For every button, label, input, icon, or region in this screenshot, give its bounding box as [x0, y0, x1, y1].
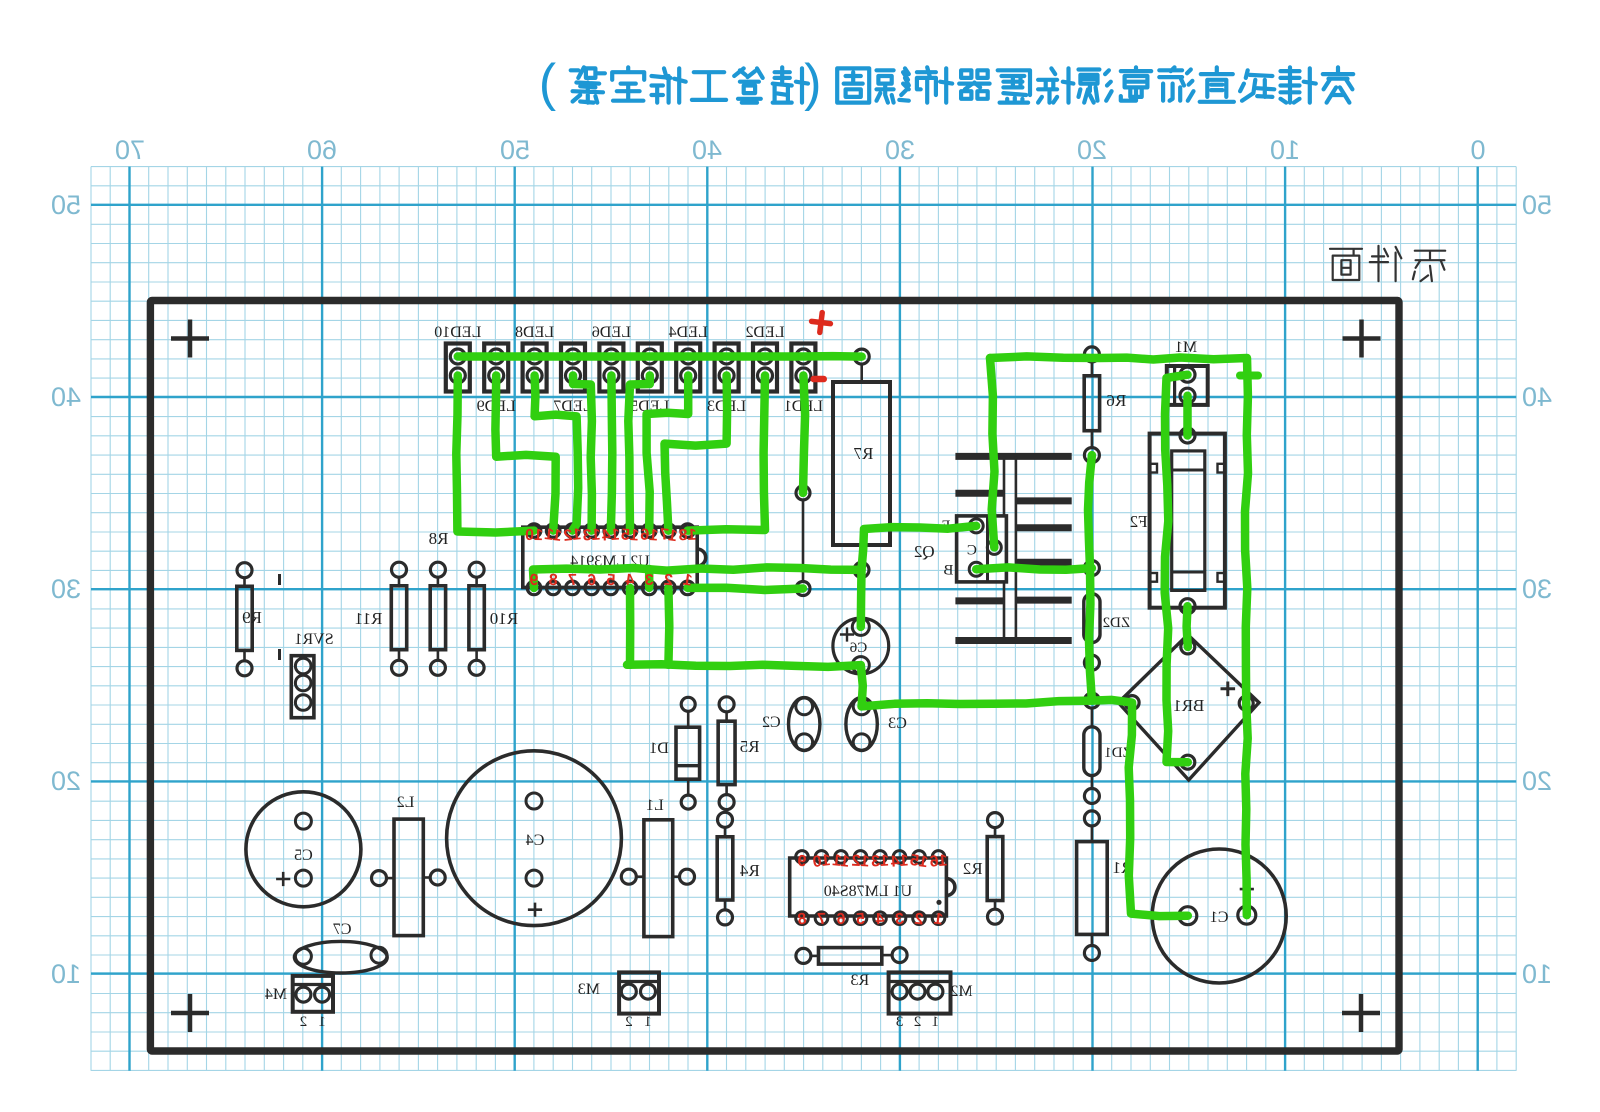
svg-text:20: 20 [1077, 135, 1107, 165]
svg-text:50: 50 [500, 135, 530, 165]
svg-text:4: 4 [624, 571, 635, 589]
svg-text:F2: F2 [1130, 512, 1148, 531]
svg-text:R5: R5 [740, 737, 760, 756]
svg-text:10: 10 [812, 852, 832, 871]
svg-text:M2: M2 [950, 983, 972, 1000]
svg-text:R4: R4 [739, 861, 759, 880]
svg-text:D1: D1 [649, 740, 669, 757]
svg-text:1: 1 [318, 1014, 326, 1030]
svg-text:LED6: LED6 [592, 324, 631, 341]
svg-text:2: 2 [300, 1014, 308, 1030]
svg-text:LED2: LED2 [745, 324, 784, 341]
svg-text:): ) [539, 54, 556, 112]
svg-text:30: 30 [1522, 574, 1552, 604]
svg-text:9: 9 [797, 853, 807, 870]
svg-text:11: 11 [832, 852, 851, 871]
svg-text:14: 14 [890, 852, 909, 870]
svg-text:R2: R2 [963, 859, 983, 878]
svg-text:LED10: LED10 [434, 324, 481, 341]
svg-text:L1: L1 [646, 797, 664, 814]
svg-text:4: 4 [875, 911, 885, 928]
svg-text:3: 3 [896, 1014, 904, 1030]
svg-text:R3: R3 [850, 972, 869, 989]
svg-text:12: 12 [563, 526, 583, 545]
svg-text:R10: R10 [490, 609, 518, 628]
svg-text:R8: R8 [429, 529, 449, 548]
svg-text:C6: C6 [849, 640, 867, 656]
svg-text:15: 15 [620, 526, 639, 544]
svg-text:1: 1 [644, 1014, 652, 1030]
svg-text:ZD2: ZD2 [1103, 615, 1131, 631]
svg-text:8: 8 [796, 910, 807, 928]
svg-text:U1 LM78S40: U1 LM78S40 [824, 883, 912, 900]
svg-text:50: 50 [1522, 190, 1552, 220]
svg-text:10: 10 [1270, 135, 1300, 165]
svg-text:B: B [943, 562, 953, 578]
svg-text:R9: R9 [242, 608, 262, 627]
svg-text:17: 17 [658, 526, 678, 545]
svg-text:C5: C5 [294, 847, 313, 864]
svg-text:1: 1 [682, 571, 693, 589]
svg-text:R6: R6 [1106, 391, 1126, 410]
svg-text:60: 60 [307, 135, 337, 165]
svg-text:C4: C4 [526, 832, 545, 849]
svg-text:13: 13 [582, 527, 601, 545]
svg-text:12: 12 [851, 853, 870, 871]
svg-text:M3: M3 [578, 981, 600, 998]
svg-text:18: 18 [678, 527, 696, 545]
svg-text:3: 3 [894, 911, 905, 929]
svg-text:BR1: BR1 [1173, 696, 1204, 715]
svg-text:C2: C2 [762, 714, 781, 731]
svg-text:R7: R7 [853, 444, 873, 463]
svg-text:70: 70 [115, 135, 145, 165]
svg-text:C: C [967, 543, 977, 559]
svg-text:10: 10 [1522, 959, 1552, 989]
svg-text:11: 11 [544, 526, 563, 545]
svg-text:40: 40 [51, 382, 81, 412]
svg-text:6: 6 [587, 572, 597, 589]
svg-text:SVR1: SVR1 [294, 631, 333, 648]
svg-text:30: 30 [51, 574, 81, 604]
svg-text:0: 0 [1470, 135, 1485, 165]
svg-text:30: 30 [885, 135, 915, 165]
svg-text:L2: L2 [397, 794, 415, 811]
svg-text:2: 2 [914, 911, 925, 929]
svg-text:10: 10 [51, 959, 81, 989]
svg-text:15: 15 [909, 852, 929, 871]
svg-text:8: 8 [548, 572, 558, 590]
svg-text:40: 40 [692, 135, 722, 165]
svg-text:6: 6 [836, 911, 846, 929]
svg-text:M4: M4 [265, 986, 287, 1003]
svg-text:20: 20 [1522, 766, 1552, 796]
svg-text:16: 16 [640, 526, 659, 544]
svg-text:40: 40 [1522, 382, 1552, 412]
svg-text:20: 20 [51, 766, 81, 796]
svg-text:5: 5 [605, 572, 615, 590]
svg-text:C3: C3 [888, 715, 907, 732]
svg-text:LED4: LED4 [669, 324, 708, 341]
svg-text:2: 2 [663, 572, 673, 590]
svg-text:C1: C1 [1210, 909, 1229, 926]
svg-text:7: 7 [568, 572, 577, 589]
svg-text:14: 14 [601, 526, 620, 544]
svg-text:Q2: Q2 [914, 542, 935, 561]
svg-text:2: 2 [625, 1014, 633, 1030]
svg-text:7: 7 [817, 911, 826, 928]
svg-text:R11: R11 [355, 609, 383, 628]
svg-text:C7: C7 [333, 921, 352, 938]
svg-text:5: 5 [855, 911, 865, 929]
svg-text:3: 3 [645, 572, 654, 589]
svg-text:1: 1 [932, 1014, 940, 1030]
svg-text:10: 10 [525, 527, 543, 544]
svg-text:2: 2 [914, 1014, 922, 1030]
svg-text:16: 16 [929, 852, 948, 870]
svg-text:50: 50 [51, 190, 81, 220]
svg-text:LED8: LED8 [515, 324, 554, 341]
svg-text:13: 13 [871, 853, 890, 871]
svg-text:9: 9 [529, 572, 538, 589]
